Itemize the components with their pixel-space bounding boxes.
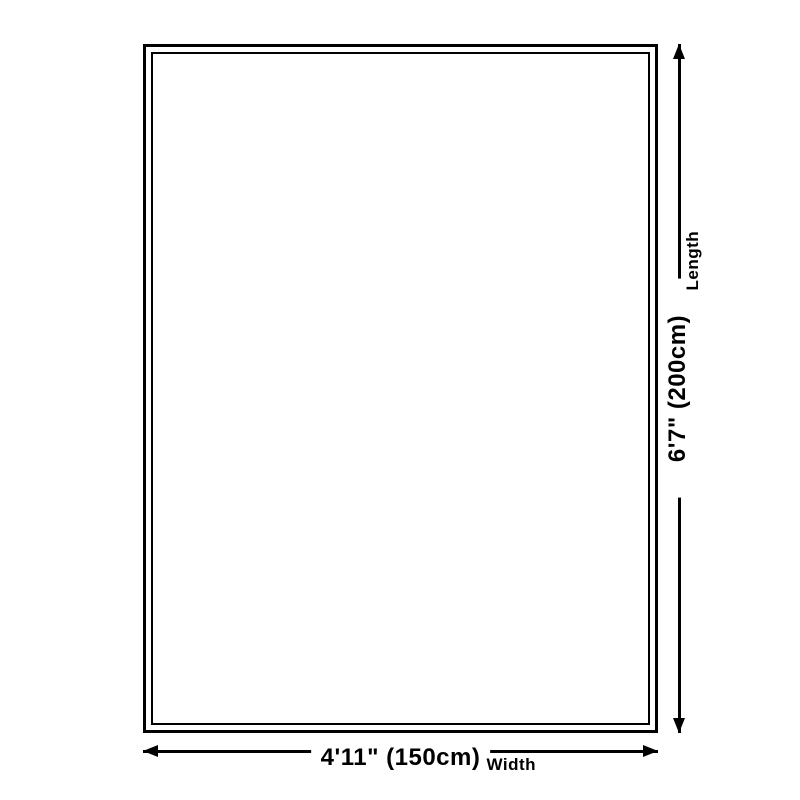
width-label: Width bbox=[487, 755, 537, 775]
width-dimension: 4'11" (150cm) Width bbox=[143, 740, 658, 784]
arrow-left-icon bbox=[143, 745, 158, 757]
rug-outline bbox=[143, 44, 658, 733]
length-label: Length bbox=[683, 231, 703, 291]
rug-inner-outline bbox=[151, 52, 650, 725]
length-dimension: 6'7" (200cm) Length bbox=[668, 44, 712, 733]
length-value: 6'7" (200cm) bbox=[658, 279, 698, 498]
arrow-down-icon bbox=[673, 718, 685, 733]
arrow-up-icon bbox=[673, 44, 685, 59]
size-diagram: 6'7" (200cm) Length 4'11" (150cm) Width bbox=[0, 0, 800, 800]
arrow-right-icon bbox=[643, 745, 658, 757]
width-value: 4'11" (150cm) bbox=[311, 738, 491, 778]
